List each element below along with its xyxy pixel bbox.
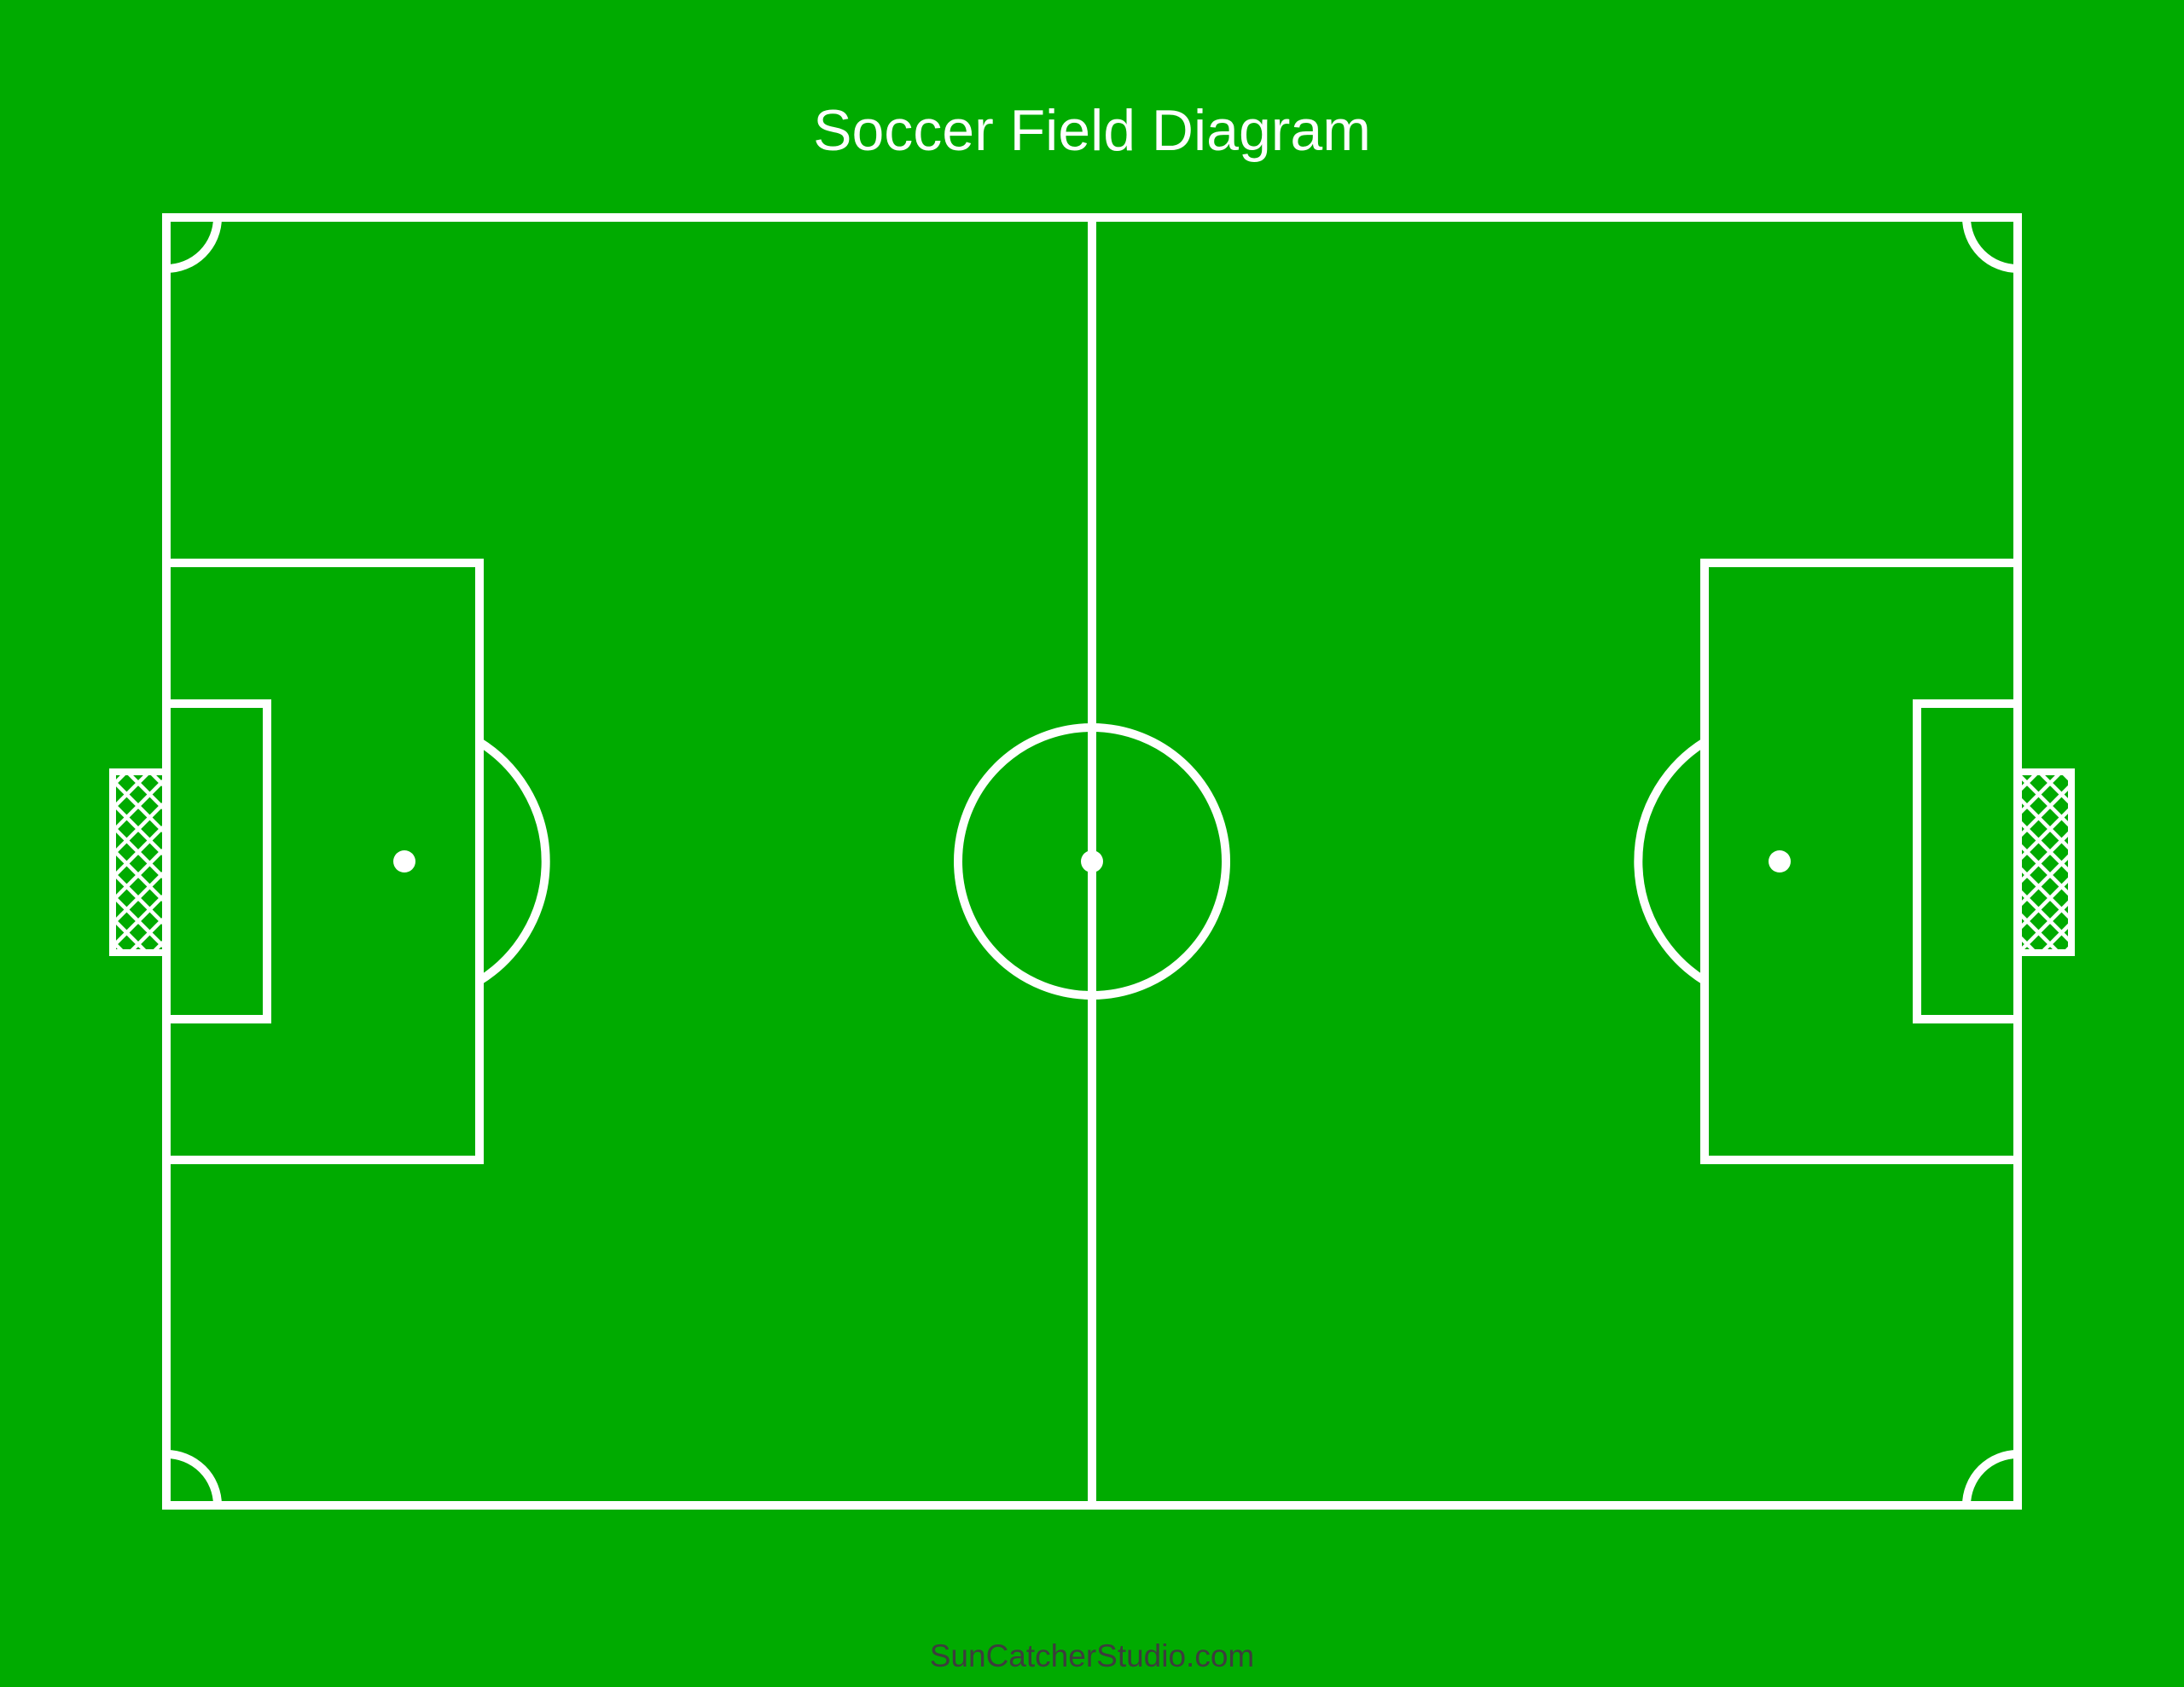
watermark-text: SunCatcherStudio.com (0, 1639, 2184, 1674)
left-penalty-spot (393, 850, 415, 872)
corner-arc-bottom-left (166, 1454, 218, 1505)
left-goal-area (166, 704, 267, 1019)
soccer-field-diagram-page: Soccer Field Diagram (0, 0, 2184, 1687)
corner-arc-top-left (166, 217, 218, 269)
right-penalty-arc (1638, 742, 1705, 981)
corner-arc-top-right (1966, 217, 2018, 269)
corner-arc-bottom-right (1966, 1454, 2018, 1505)
left-penalty-arc (479, 742, 546, 981)
soccer-field-drawing (0, 0, 2184, 1687)
right-goal-area (1917, 704, 2018, 1019)
right-goal-net (2017, 772, 2071, 953)
left-penalty-area (166, 563, 479, 1160)
left-goal-net (113, 772, 167, 953)
right-penalty-area (1705, 563, 2018, 1160)
center-spot (1081, 850, 1103, 872)
right-penalty-spot (1769, 850, 1791, 872)
